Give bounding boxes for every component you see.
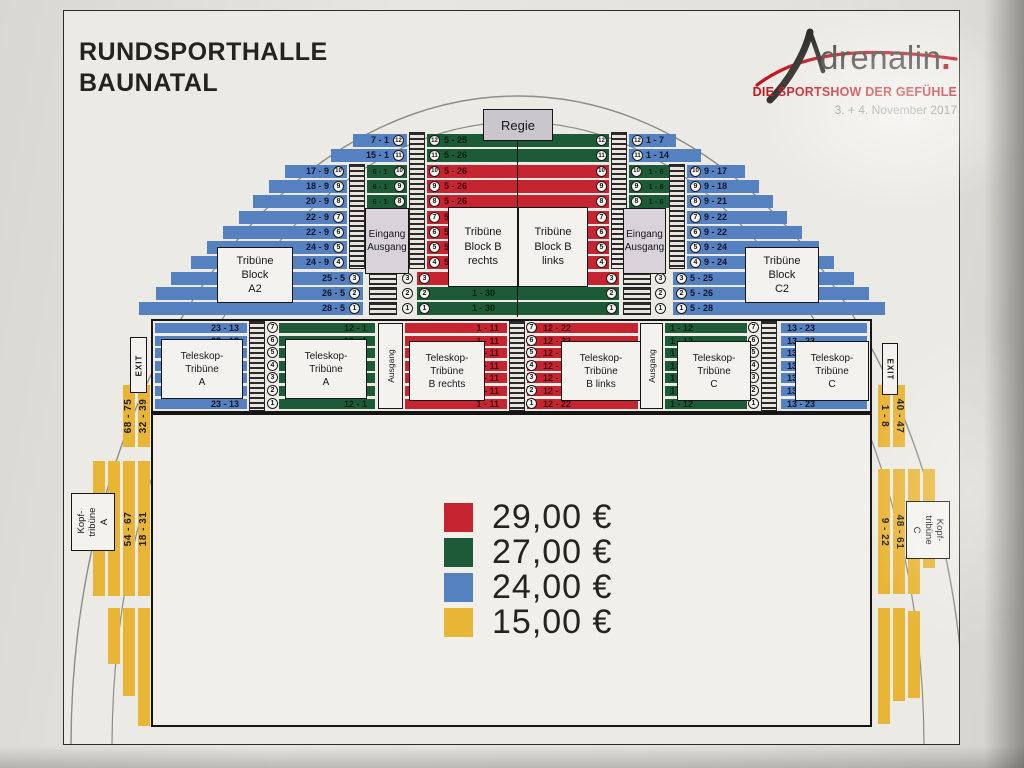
row-number-badge: 10 xyxy=(394,166,405,177)
row-number-badge: 9 xyxy=(429,181,440,192)
stairs-hatch xyxy=(669,164,685,269)
regie-box: Regie xyxy=(483,109,553,141)
teleskop-b-rechts-label-box: Teleskop- Tribüne B rechts xyxy=(409,341,485,401)
tribune-block-b-rechts-label: Tribüne Block B rechts xyxy=(448,207,518,287)
teleskop-a-blue-label-box: Teleskop- Tribüne A xyxy=(161,339,243,399)
seat-range-label: 5 - 28 xyxy=(690,302,880,315)
photo-edge xyxy=(0,746,1024,768)
seat-range-label: 6 - 1 xyxy=(368,180,392,193)
row-number-badge: 3 xyxy=(606,273,617,284)
seat-range-label: 1 - 14 xyxy=(646,149,696,162)
kopftribune-seat-bar xyxy=(108,608,120,664)
kopf-tribune-c-box: Kopf- tribüne C xyxy=(906,501,950,559)
row-number-badge: 2 xyxy=(606,288,617,299)
stairs-hatch xyxy=(369,287,397,300)
row-number-badge: 12 xyxy=(632,135,643,146)
legend-item: 24,00 € xyxy=(444,573,612,602)
seat-range-label: 5 - 26 xyxy=(444,180,514,193)
tribune-block-a2-label: Tribüne Block A2 xyxy=(217,247,293,303)
row-number-badge: 6 xyxy=(429,227,440,238)
entrance-exit-box-left: Eingang Ausgang xyxy=(365,208,409,274)
seat-range-label: 23 - 13 xyxy=(193,322,239,335)
seat-range-label: 9 - 22 xyxy=(704,211,782,224)
row-number-badge: 2 xyxy=(349,288,360,299)
entrance-exit-box-right: Eingang Ausgang xyxy=(623,208,666,274)
stairs-hatch xyxy=(369,302,397,315)
seat-range-label: 1 - 6 xyxy=(645,195,667,208)
row-number-badge: 2 xyxy=(267,385,278,396)
row-number-badge: 10 xyxy=(596,166,607,177)
legend-item: 15,00 € xyxy=(444,608,612,637)
ausgang-box-right: Ausgang xyxy=(640,323,663,409)
legend-swatch xyxy=(444,538,473,567)
kopf-tribune-c-label: Kopf- tribüne C xyxy=(911,509,945,551)
row-number-badge: 1 xyxy=(402,303,413,314)
legend-price: 29,00 € xyxy=(492,498,612,537)
row-number-badge: 2 xyxy=(419,288,430,299)
row-number-badge: 3 xyxy=(349,273,360,284)
stairs-hatch xyxy=(761,321,777,411)
stairs-hatch xyxy=(509,321,525,411)
ausgang-label: Ausgang xyxy=(647,349,657,383)
row-number-badge: 10 xyxy=(333,166,344,177)
kopftribune-seat-bar xyxy=(878,608,890,724)
row-number-badge: 6 xyxy=(526,335,537,346)
seat-range-label: 13 - 23 xyxy=(787,322,835,335)
row-number-badge: 3 xyxy=(419,273,430,284)
row-number-badge: 7 xyxy=(333,212,344,223)
seat-range-label: 1 - 11 xyxy=(453,322,499,335)
seat-range-label: 1 - 30 xyxy=(472,287,542,300)
row-number-badge: 7 xyxy=(596,212,607,223)
seat-range-label: 1 - 7 xyxy=(646,134,671,147)
row-number-badge: 9 xyxy=(690,181,701,192)
kopftribune-range-label: 48 - 61 xyxy=(893,497,905,567)
row-number-badge: 10 xyxy=(690,166,701,177)
row-number-badge: 12 xyxy=(393,135,404,146)
row-number-badge: 12 xyxy=(429,135,440,146)
seat-range-label: 5 - 26 xyxy=(444,149,514,162)
seat-range-label: 28 - 5 xyxy=(141,302,345,315)
legend-price: 27,00 € xyxy=(492,533,612,572)
teleskop-c-green-label-box: Teleskop- Tribüne C xyxy=(677,341,751,401)
row-number-badge: 6 xyxy=(333,227,344,238)
row-number-badge: 9 xyxy=(596,181,607,192)
row-number-badge: 12 xyxy=(596,135,607,146)
legend-swatch xyxy=(444,503,473,532)
photo-background: RUNDSPORTHALLE BAUNATAL drenalin. DIE SP… xyxy=(0,0,1024,768)
legend-item: 27,00 € xyxy=(444,538,612,567)
legend-swatch xyxy=(444,573,473,602)
seat-range-label: 15 - 1 xyxy=(333,149,389,162)
row-number-badge: 2 xyxy=(402,288,413,299)
row-number-badge: 7 xyxy=(429,212,440,223)
kopftribune-range-label: 18 - 31 xyxy=(138,494,150,564)
seating-plan: RUNDSPORTHALLE BAUNATAL drenalin. DIE SP… xyxy=(63,10,960,745)
kopftribune-seat-bar xyxy=(123,608,135,696)
row-number-badge: 10 xyxy=(429,166,440,177)
row-number-badge: 2 xyxy=(676,288,687,299)
seat-range-label: 1 - 6 xyxy=(645,180,667,193)
seat-range-label: 9 - 17 xyxy=(704,165,740,178)
legend-price: 15,00 € xyxy=(492,603,612,642)
row-number-badge: 7 xyxy=(526,322,537,333)
seat-range-label: 20 - 9 xyxy=(255,195,329,208)
row-number-badge: 10 xyxy=(631,166,642,177)
stairs-hatch xyxy=(623,302,651,315)
exit-box-right: EXIT xyxy=(882,343,898,395)
teleskop-b-links-label-box: Teleskop- Tribüne B links xyxy=(561,341,641,401)
row-number-badge: 6 xyxy=(267,335,278,346)
seat-range-label: 6 - 1 xyxy=(368,165,392,178)
row-number-badge: 9 xyxy=(631,181,642,192)
stairs-hatch xyxy=(349,164,365,269)
seat-range-label: 1 - 30 xyxy=(472,302,542,315)
stairs-hatch xyxy=(623,287,651,300)
seat-range-label: 22 - 9 xyxy=(241,211,329,224)
seat-range-label: 9 - 22 xyxy=(704,226,797,239)
row-number-badge: 7 xyxy=(690,212,701,223)
seat-range-label: 6 - 1 xyxy=(368,195,392,208)
seat-range-label: 12 - 1 xyxy=(321,398,367,411)
row-number-badge: 6 xyxy=(596,227,607,238)
row-number-badge: 7 xyxy=(748,322,759,333)
seat-range-label: 17 - 9 xyxy=(287,165,329,178)
seat-range-label: 7 - 1 xyxy=(355,134,389,147)
seat-range-label: 1 - 12 xyxy=(670,322,718,335)
row-number-badge: 4 xyxy=(526,360,537,371)
row-number-badge: 1 xyxy=(526,398,537,409)
seat-range-label: 12 - 22 xyxy=(543,322,591,335)
teleskop-a-green-label-box: Teleskop- Tribüne A xyxy=(285,339,367,399)
kopftribune-seat-bar xyxy=(138,608,150,726)
photo-edge xyxy=(984,0,1024,768)
row-number-badge: 6 xyxy=(690,227,701,238)
price-legend: 29,00 € 27,00 € 24,00 € 15,00 € xyxy=(444,503,612,643)
row-number-badge: 3 xyxy=(267,372,278,383)
kopftribune-seat-bar xyxy=(908,611,920,698)
legend-item: 29,00 € xyxy=(444,503,612,532)
seat-range-label: 9 - 21 xyxy=(704,195,768,208)
exit-label: EXIT xyxy=(886,358,895,380)
seat-range-label: 9 - 18 xyxy=(704,180,754,193)
row-number-badge: 9 xyxy=(394,181,405,192)
legend-price: 24,00 € xyxy=(492,568,612,607)
row-number-badge: 5 xyxy=(267,347,278,358)
seat-range-label: 22 - 9 xyxy=(225,226,329,239)
row-number-badge: 1 xyxy=(655,303,666,314)
ausgang-box-left: Ausgang xyxy=(378,323,403,409)
row-number-badge: 3 xyxy=(655,273,666,284)
row-number-badge: 2 xyxy=(655,288,666,299)
tribune-block-b-links-label: Tribüne Block B links xyxy=(518,207,588,287)
seat-range-label: 12 - 1 xyxy=(321,322,367,335)
row-number-badge: 3 xyxy=(402,273,413,284)
seat-range-label: 5 - 26 xyxy=(444,165,514,178)
kopftribune-seat-bar xyxy=(893,608,905,701)
exit-label: EXIT xyxy=(134,354,143,376)
legend-swatch xyxy=(444,608,473,637)
ausgang-label: Ausgang xyxy=(386,349,396,383)
row-number-badge: 9 xyxy=(333,181,344,192)
kopf-tribune-a-box: Kopf- tribüne A xyxy=(71,493,115,551)
kopftribune-range-label: 9 - 22 xyxy=(878,497,890,567)
row-number-badge: 4 xyxy=(267,360,278,371)
row-number-badge: 7 xyxy=(267,322,278,333)
row-number-badge: 3 xyxy=(676,273,687,284)
seat-range-label: 1 - 6 xyxy=(645,165,667,178)
exit-box-left: EXIT xyxy=(130,337,147,393)
tribune-block-c2-label: Tribüne Block C2 xyxy=(745,247,819,303)
kopf-tribune-a-label: Kopf- tribüne A xyxy=(76,501,110,543)
kopftribune-range-label: 54 - 67 xyxy=(123,494,135,564)
stairs-hatch xyxy=(249,321,265,411)
row-number-badge: 2 xyxy=(526,385,537,396)
row-number-badge: 1 xyxy=(267,398,278,409)
teleskop-c-blue-label-box: Teleskop- Tribüne C xyxy=(795,341,869,401)
stairs-hatch xyxy=(409,132,425,269)
seat-range-label: 23 - 13 xyxy=(193,398,239,411)
seat-range-label: 18 - 9 xyxy=(271,180,329,193)
